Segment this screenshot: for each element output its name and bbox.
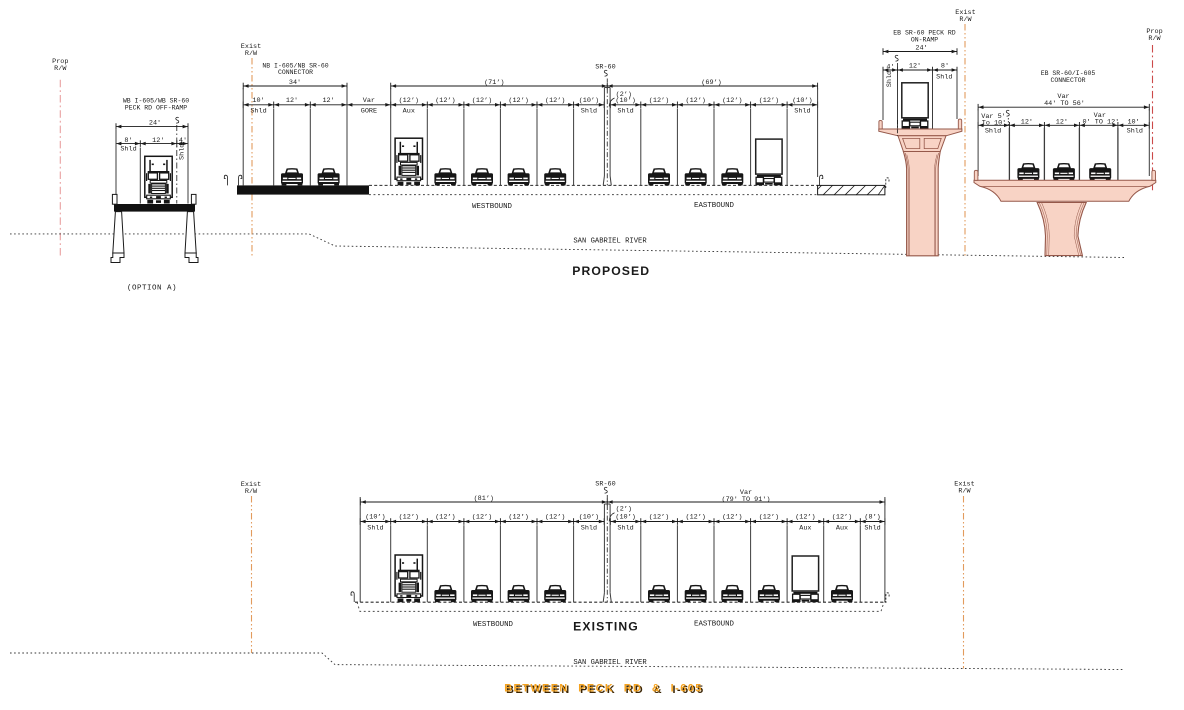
svg-text:Shld: Shld	[120, 146, 136, 154]
svg-text:(12’): (12’)	[435, 514, 455, 522]
svg-text:Shld: Shld	[936, 74, 952, 82]
svg-text:(12’): (12’)	[759, 514, 779, 522]
svg-text:(12’): (12’)	[472, 97, 492, 105]
svg-text:Shld: Shld	[985, 128, 1001, 136]
svg-text:Aux: Aux	[836, 524, 848, 532]
svg-text:Shld: Shld	[864, 524, 880, 532]
svg-text:12': 12'	[909, 63, 921, 71]
svg-text:CONNECTOR: CONNECTOR	[1050, 77, 1085, 84]
svg-text:(79' TO 91'): (79' TO 91')	[722, 496, 771, 504]
svg-text:WESTBOUND: WESTBOUND	[473, 621, 513, 629]
svg-text:CONNECTOR: CONNECTOR	[278, 69, 313, 76]
svg-text:(12’): (12’)	[508, 97, 528, 105]
svg-text:(12’): (12’)	[399, 97, 419, 105]
svg-text:Shld: Shld	[617, 108, 633, 116]
svg-text:(12’): (12’)	[795, 514, 815, 522]
svg-text:(8’): (8’)	[864, 514, 880, 522]
svg-text:(10’): (10’)	[365, 514, 385, 522]
svg-text:Shld: Shld	[367, 524, 383, 532]
svg-text:WESTBOUND: WESTBOUND	[472, 203, 512, 211]
svg-text:(12’): (12’)	[545, 97, 565, 105]
svg-text:(12’): (12’)	[685, 97, 705, 105]
svg-text:(12’): (12’)	[435, 97, 455, 105]
svg-text:SAN GABRIEL RIVER: SAN GABRIEL RIVER	[573, 238, 647, 246]
svg-text:PROPOSED: PROPOSED	[572, 264, 650, 278]
svg-text:ON-RAMP: ON-RAMP	[911, 36, 938, 43]
svg-text:GORE: GORE	[361, 108, 377, 116]
svg-text:(12’): (12’)	[722, 97, 742, 105]
svg-text:BETWEEN PECK RD & I-605: BETWEEN PECK RD & I-605	[504, 682, 702, 694]
svg-text:Var: Var	[363, 97, 375, 105]
svg-text:12': 12'	[322, 97, 334, 105]
svg-text:R/W: R/W	[958, 488, 971, 496]
svg-text:EASTBOUND: EASTBOUND	[694, 202, 734, 210]
svg-text:10': 10'	[252, 97, 264, 105]
svg-text:Shld: Shld	[617, 524, 633, 532]
svg-text:44' TO 56': 44' TO 56'	[1044, 100, 1085, 108]
svg-text:(12’): (12’)	[472, 514, 492, 522]
svg-text:Shld: Shld	[1127, 128, 1143, 136]
svg-text:(12’): (12’)	[649, 514, 669, 522]
svg-text:(12’): (12’)	[649, 97, 669, 105]
svg-text:(10’): (10’)	[579, 97, 599, 105]
svg-text:Shld: Shld	[886, 71, 894, 87]
svg-text:(2’): (2’)	[616, 91, 632, 99]
svg-text:(OPTION A): (OPTION A)	[127, 285, 177, 293]
svg-text:Shld: Shld	[794, 108, 810, 116]
svg-text:EASTBOUND: EASTBOUND	[694, 620, 734, 628]
svg-text:R/W: R/W	[245, 488, 258, 496]
svg-text:R/W: R/W	[959, 16, 972, 24]
svg-text:(12’): (12’)	[685, 514, 705, 522]
svg-text:To 10': To 10'	[982, 119, 1006, 127]
svg-text:(10’): (10’)	[792, 97, 812, 105]
svg-text:PECK RD OFF-RAMP: PECK RD OFF-RAMP	[125, 104, 188, 111]
svg-text:(10’): (10’)	[579, 514, 599, 522]
svg-text:(10’): (10’)	[615, 514, 635, 522]
svg-text:(12’): (12’)	[832, 514, 852, 522]
svg-text:Shld: Shld	[581, 524, 597, 532]
svg-text:8': 8'	[941, 63, 949, 71]
svg-text:Aux: Aux	[403, 108, 415, 116]
svg-text:R/W: R/W	[54, 65, 67, 73]
svg-text:(12’): (12’)	[508, 514, 528, 522]
svg-text:(12’): (12’)	[545, 514, 565, 522]
svg-text:(12’): (12’)	[722, 514, 742, 522]
svg-text:EXISTING: EXISTING	[573, 619, 639, 633]
svg-text:Shld: Shld	[581, 108, 597, 116]
svg-text:Shld: Shld	[179, 144, 187, 160]
svg-text:Shld: Shld	[250, 108, 266, 116]
svg-text:(2’): (2’)	[616, 506, 632, 514]
svg-text:R/W: R/W	[245, 50, 258, 58]
svg-text:Aux: Aux	[799, 524, 811, 532]
svg-text:(12’): (12’)	[399, 514, 419, 522]
svg-text:12': 12'	[286, 97, 298, 105]
svg-text:SAN GABRIEL RIVER: SAN GABRIEL RIVER	[573, 659, 647, 667]
svg-text:R/W: R/W	[1148, 35, 1161, 43]
svg-text:(12’): (12’)	[759, 97, 779, 105]
